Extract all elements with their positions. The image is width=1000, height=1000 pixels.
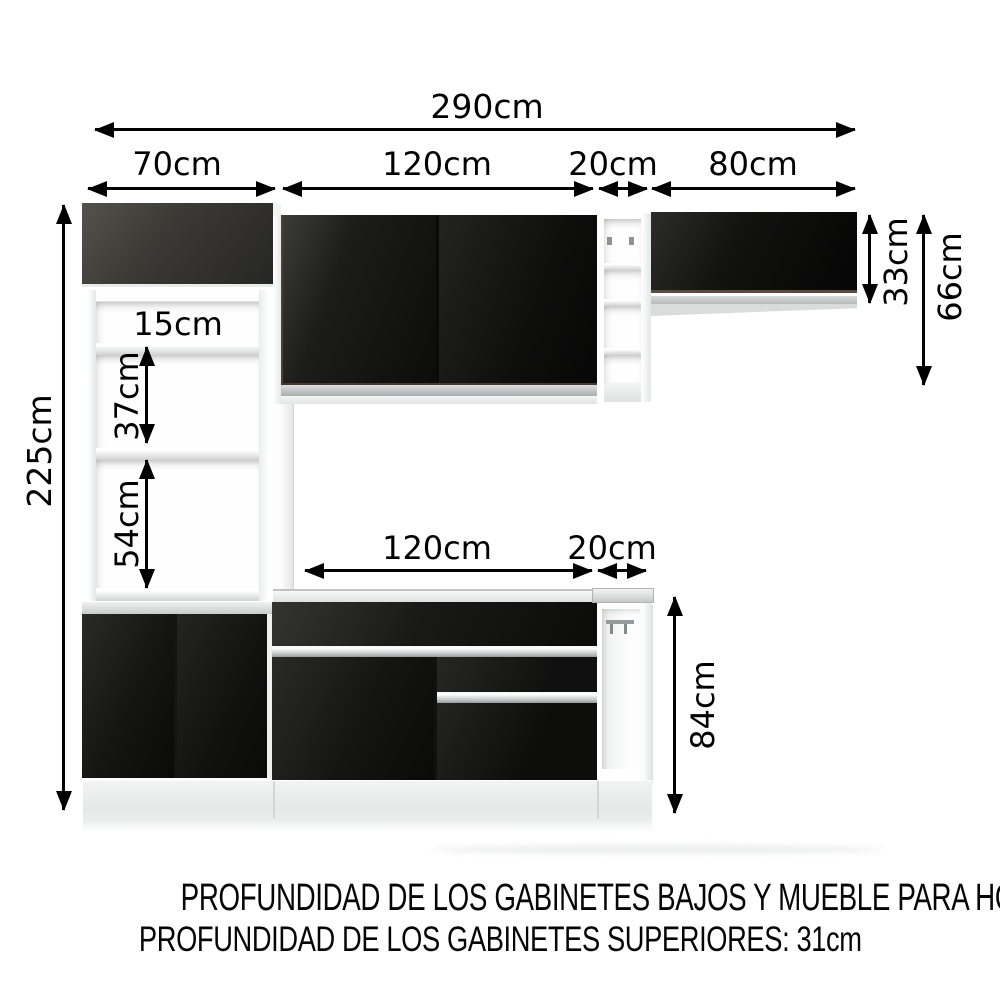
base-end-right-face — [640, 603, 653, 785]
base-right-door — [437, 703, 597, 780]
label-upper-right-width: 80cm — [678, 145, 828, 183]
upper-right-cabinet — [651, 212, 857, 293]
dim-arrow-tower-width — [88, 187, 275, 190]
footer-depth-lower-cabinets-text: PROFUNDIDAD DE LOS GABINETES BAJOS Y MUE… — [181, 879, 1000, 917]
footer-depth-upper-cabinets-text: PROFUNDIDAD DE LOS GABINETES SUPERIORES:… — [139, 922, 862, 957]
kitchen-cabinet-dimension-diagram: 290cm 70cm 120cm 20cm 80cm 120cm 20cm 15… — [0, 0, 1000, 1000]
label-tower-gap-middle: 37cm — [108, 341, 146, 451]
plinth-fade — [83, 818, 652, 832]
base-end-hook-2 — [624, 624, 627, 634]
shelf-unit-opening-4 — [604, 355, 641, 383]
dim-arrow-base-end-width — [598, 569, 646, 572]
shelf-unit-clip-right — [629, 237, 634, 245]
label-base-height: 84cm — [684, 645, 722, 765]
dim-arrow-upper-shelf-width — [599, 187, 647, 190]
upper-shelf-unit — [597, 213, 651, 402]
plinth-seam-2 — [597, 781, 599, 819]
plinth — [83, 780, 652, 818]
dim-arrow-base-run-width — [305, 569, 592, 572]
base-handle-right — [437, 692, 597, 703]
label-tower-gap-bottom: 54cm — [108, 469, 146, 579]
base-top-drawer — [272, 602, 597, 646]
shelf-unit-shelf-2 — [604, 299, 641, 306]
shelf-unit-opening-3 — [604, 306, 641, 348]
shelf-unit-right-face — [641, 213, 651, 402]
label-base-end-width: 20cm — [537, 529, 687, 567]
tower-base-door-right — [177, 614, 267, 778]
base-handle-top — [272, 646, 597, 657]
tower-base-cabinet — [82, 614, 267, 778]
tower-top-cabinet — [82, 203, 273, 287]
upper-middle-door-left — [283, 215, 436, 383]
base-right-drawer — [437, 657, 597, 692]
base-end-interior — [602, 609, 640, 769]
label-base-run-width: 120cm — [362, 529, 512, 567]
dim-arrow-upper-right-door-height — [868, 215, 871, 303]
tower-base-door-left — [82, 614, 174, 778]
mid-support-panel — [273, 404, 294, 601]
tower-left-stile — [82, 290, 96, 601]
label-upper-shelf-width: 20cm — [538, 145, 688, 183]
upper-middle-underside — [281, 396, 597, 404]
upper-right-bottom-rail — [651, 296, 857, 304]
label-tower-width: 70cm — [102, 145, 252, 183]
footer-depth-upper-cabinets: PROFUNDIDAD DE LOS GABINETES SUPERIORES:… — [0, 922, 1000, 957]
base-left-door — [272, 657, 434, 780]
dim-arrow-base-height — [673, 597, 676, 813]
dim-arrow-upper-right-total-height — [922, 215, 925, 385]
label-upper-right-door-height: 33cm — [877, 207, 915, 317]
shelf-unit-opening-2 — [604, 270, 641, 299]
tower-right-stile — [259, 290, 273, 601]
tower-bottom-rail — [96, 588, 259, 601]
tower-countertop — [82, 601, 273, 614]
base-end-unit — [597, 603, 653, 785]
plinth-seam-1 — [273, 781, 275, 819]
upper-middle-bottom-rail — [281, 383, 597, 396]
footer-depth-lower-cabinets: PROFUNDIDAD DE LOS GABINETES BAJOS Y MUE… — [0, 879, 1000, 917]
dim-arrow-total-height — [62, 205, 65, 810]
label-upper-cabinet-width: 120cm — [362, 145, 512, 183]
dim-arrow-upper-cabinet-width — [283, 187, 593, 190]
label-tower-gap-top: 15cm — [103, 306, 253, 342]
upper-middle-door-right — [439, 215, 597, 383]
base-end-countertop — [592, 588, 654, 603]
floor-shadow — [430, 845, 885, 854]
tower-top-rail — [82, 290, 273, 302]
label-total-width: 290cm — [387, 87, 587, 125]
upper-right-underside — [651, 304, 857, 316]
shelf-unit-shelf-1 — [604, 263, 641, 270]
shelf-unit-bottom-face — [604, 383, 641, 402]
label-upper-right-total-height: 66cm — [931, 222, 969, 332]
base-middle-cabinet — [272, 602, 597, 780]
upper-middle-left-edge — [273, 215, 281, 404]
shelf-unit-shelf-3 — [604, 348, 641, 355]
base-end-hook-1 — [610, 624, 613, 634]
dim-arrow-total-width — [95, 128, 855, 131]
label-total-height: 225cm — [19, 376, 59, 526]
upper-middle-cabinet — [281, 215, 597, 383]
shelf-unit-clip-left — [607, 237, 612, 245]
dim-arrow-upper-right-width — [652, 187, 855, 190]
base-counter-edge — [273, 589, 597, 602]
